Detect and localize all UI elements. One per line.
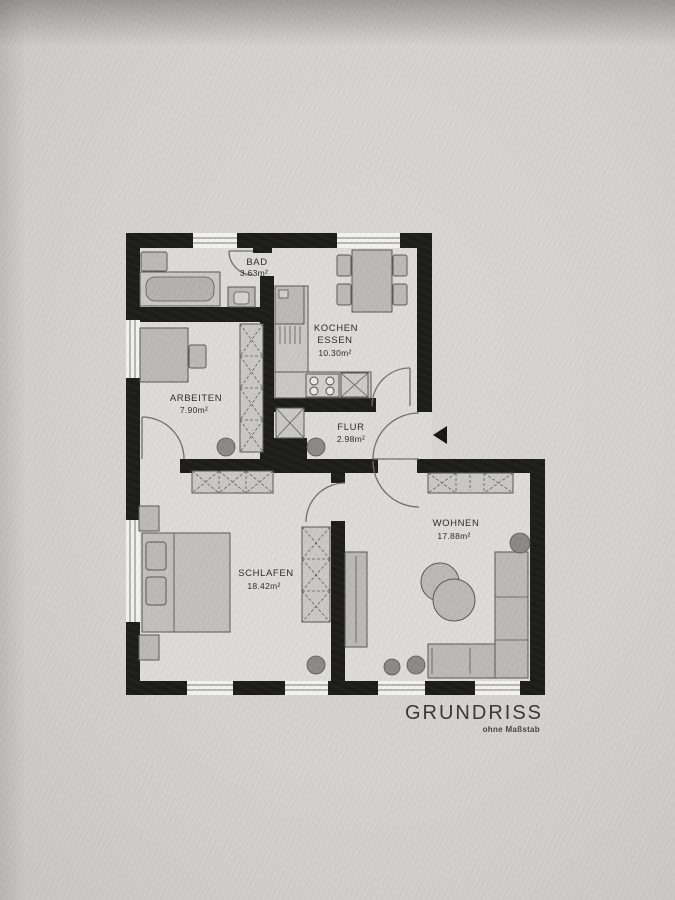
window-arbeiten [126,320,140,378]
coffee-table-2 [433,579,475,621]
flur-cabinet [276,408,304,438]
wall-schlafen-wohnen-divider [331,521,345,681]
stool-wohnen-1 [384,659,400,675]
plant [510,533,530,553]
plan-title: GRUNDRISS [405,702,543,724]
wardrobe-arbeiten [240,324,263,452]
stool-schlafen [307,656,325,674]
window-schlafen-south-1 [187,681,233,695]
wall-right [530,459,545,695]
pillow-1 [146,542,166,570]
wardrobe-schlafen-north [192,471,273,493]
plan-title-block: GRUNDRISS ohne Maßstab [405,702,543,734]
floor-plan-photo: BAD 3.63m² KOCHEN ESSEN 10.30m² ARBEITEN… [0,0,675,900]
dining-table [352,250,392,312]
label-wohnen: WOHNEN [433,518,480,529]
stool-flur [307,438,325,456]
wall-bad-bottom [126,307,274,322]
nightstand-1 [139,506,159,531]
wardrobe-wohnen [428,473,513,493]
label-kueche: KOCHEN [314,323,358,334]
fridge-handle [279,290,288,298]
window-schlafen-west [126,520,140,622]
window-schlafen-south-2 [285,681,328,695]
desk [140,328,188,382]
toilet-bowl [234,292,249,304]
area-bad: 3.63m² [240,268,268,278]
window-wohnen-south-1 [378,681,425,695]
label-arbeiten: ARBEITEN [170,393,222,404]
wall-flur-block [274,438,307,459]
desk-chair [189,345,206,368]
pillow-2 [146,577,166,605]
label-flur: FLUR [337,422,364,433]
stool-wohnen-2 [407,656,425,674]
wall-left [126,233,140,695]
entrance-arrow-icon [433,426,447,444]
area-arbeiten: 7.90m² [180,405,208,415]
bathtub-inner [146,277,214,301]
area-schlafen: 18.42m² [247,581,280,591]
area-flur: 2.98m² [337,434,365,444]
window-bad [193,233,237,248]
wall-bad-door-stub [253,233,272,253]
bed [142,533,230,632]
wall-wohnen-top [417,459,545,473]
washbasin [141,252,167,271]
nightstand-2 [139,635,159,660]
floor-plan: BAD 3.63m² KOCHEN ESSEN 10.30m² ARBEITEN… [0,0,675,900]
window-wohnen-south-2 [475,681,520,695]
label-bad: BAD [246,257,267,268]
window-kueche [337,233,400,248]
label-schlafen: SCHLAFEN [238,568,293,579]
wardrobe-schlafen-east [302,527,330,622]
sink [341,373,368,397]
wall-divider-stub [331,473,345,483]
label-kueche-line2: ESSEN [317,335,352,346]
plan-subtitle: ohne Maßstab [483,725,540,734]
stool-arbeiten [217,438,235,456]
area-wohnen: 17.88m² [437,531,470,541]
sideboard [345,552,367,647]
area-kueche: 10.30m² [318,348,351,358]
wall-kitchen-right [417,233,432,412]
